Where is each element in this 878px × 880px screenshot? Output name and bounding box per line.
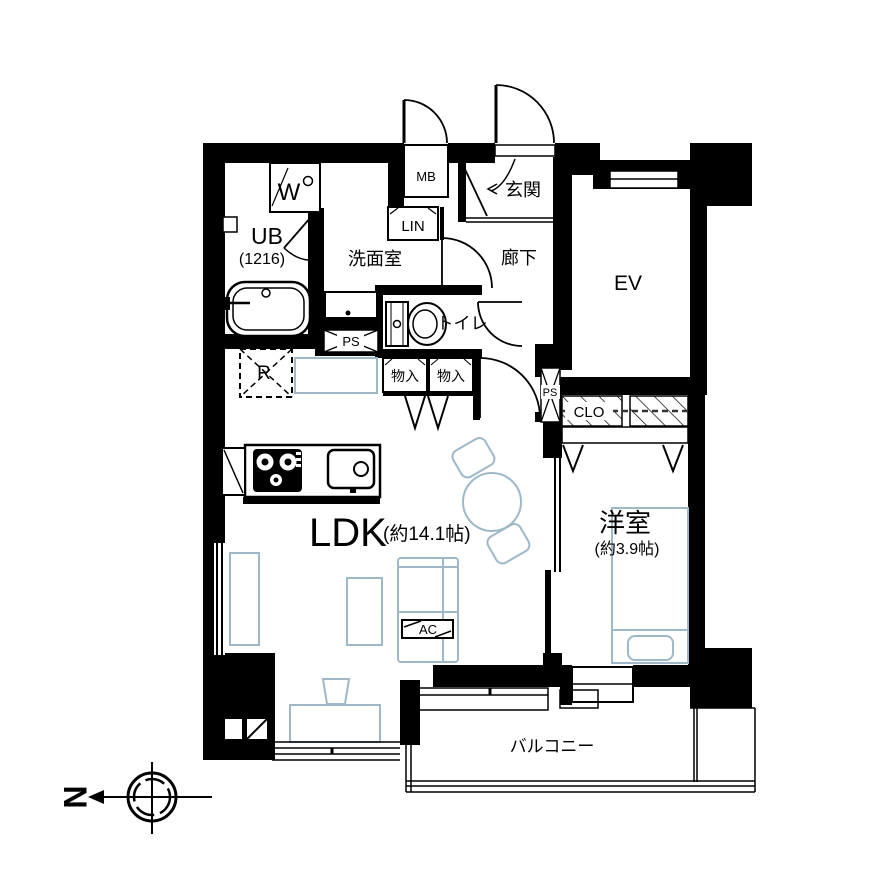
storage-units: 物入 物入: [383, 358, 473, 428]
western-room-size: (約3.9帖): [595, 540, 660, 558]
storage-1-label: 物入: [391, 368, 419, 384]
pipe-space-1-label: PS: [342, 334, 360, 349]
dining-table: [463, 473, 521, 531]
closet-label: CLO: [574, 404, 605, 421]
western-room-label: 洋室: [599, 508, 651, 538]
west-window: [214, 543, 225, 655]
tv: [323, 679, 349, 704]
tv-set: [290, 679, 380, 742]
ldk-label: LDK: [309, 511, 387, 555]
meter-box-label: MB: [416, 169, 436, 184]
hallway-label: 廊下: [501, 248, 537, 268]
pipe-space-2-label: PS: [543, 387, 558, 399]
vanity-counter: [325, 292, 377, 318]
ldk-size: (約14.1帖): [383, 523, 471, 545]
elevator-label: EV: [614, 272, 642, 295]
floor-plan-page: MB LIN W UB (1216) 洗面室 PS: [0, 0, 878, 880]
north-label: N: [57, 785, 93, 808]
balcony-step: [418, 688, 548, 710]
pipe-space-1: PS: [324, 330, 378, 352]
western-room-window: [572, 667, 633, 702]
tv-stand: [290, 705, 380, 742]
closet: CLO: [562, 396, 688, 471]
kitchen: [222, 445, 380, 497]
unit-bath-label: UB: [251, 223, 283, 249]
compass: N: [57, 762, 212, 834]
coffee-table: [347, 578, 382, 645]
air-conditioner-label: AC: [419, 622, 437, 637]
refrigerator-space: R: [240, 349, 292, 397]
elevator-door: [610, 171, 678, 188]
pipe-space-2: PS: [541, 368, 560, 422]
floor-plan-drawing: MB LIN W UB (1216) 洗面室 PS: [0, 0, 878, 880]
ldk-south-window: [272, 742, 400, 760]
unit-bath: UB (1216): [221, 217, 312, 336]
kitchen-cabinet: [295, 358, 377, 393]
balcony-label: バルコニー: [510, 737, 595, 756]
unit-bath-size: (1216): [239, 251, 285, 268]
balcony-railing: [406, 781, 755, 792]
balcony-divider: [694, 708, 697, 782]
refrigerator-label: R: [257, 363, 271, 384]
sliding-door: [545, 458, 560, 667]
entrance-label: 玄関: [505, 180, 541, 200]
storage-2-label: 物入: [437, 368, 465, 384]
air-conditioner: AC: [402, 620, 453, 638]
washroom-label: 洗面室: [348, 249, 402, 269]
dining-set: [450, 436, 532, 566]
stove: [253, 449, 302, 492]
meter-box: MB: [404, 145, 448, 197]
washer-label: W: [278, 179, 301, 206]
pillow: [628, 636, 673, 660]
shelf-unit: [398, 558, 458, 662]
washer-space: W: [270, 163, 320, 212]
bath-faucet: [262, 289, 270, 297]
linen-label: LIN: [401, 218, 424, 235]
toilet-room: トイレ: [386, 302, 488, 346]
sink: [328, 450, 374, 493]
sideboard: [230, 553, 259, 645]
balcony-left-edge: [406, 745, 411, 792]
linen-closet: LIN: [388, 207, 438, 240]
